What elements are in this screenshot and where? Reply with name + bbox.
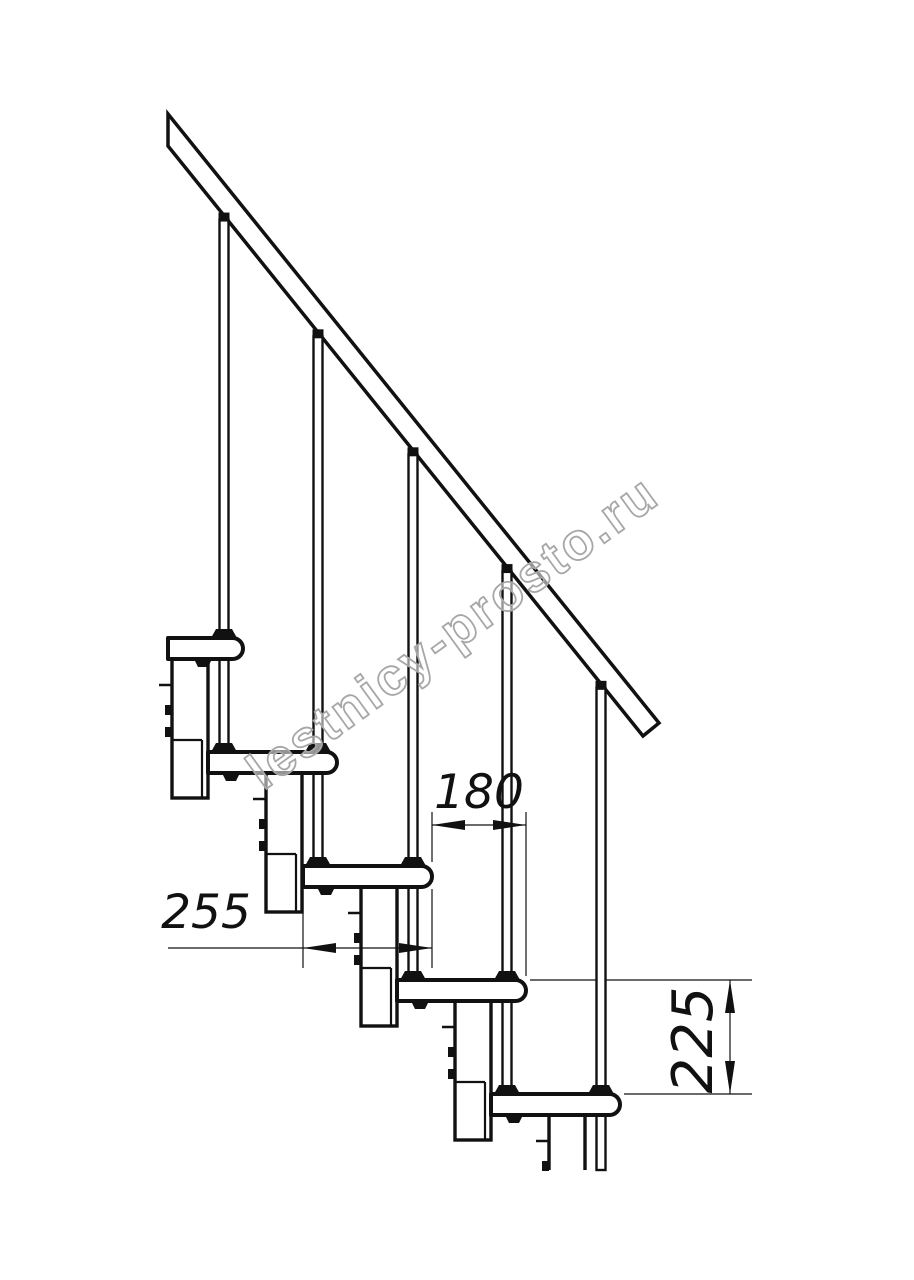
baluster-rod	[314, 336, 323, 862]
technical-drawing-figure: Side elevation technical drawing of a mo…	[0, 0, 914, 1280]
module-bolt-tab	[542, 1161, 549, 1171]
baluster-collar	[588, 1085, 614, 1094]
dimension-arrow	[725, 980, 735, 1013]
baluster-rail-cap	[408, 447, 419, 456]
baluster-collar	[400, 857, 426, 866]
dimensions-group: 180 255 225	[161, 765, 735, 1094]
dimension-label-255: 255	[161, 885, 251, 940]
baluster-rail-cap	[596, 681, 607, 690]
baluster-collar	[211, 629, 237, 638]
baluster-rod	[503, 571, 512, 1090]
dimension-arrow	[303, 943, 336, 953]
module-bolt-tab	[354, 955, 361, 965]
module-bolt-tab	[165, 727, 172, 737]
tread	[397, 980, 526, 1001]
tread-bolt	[317, 887, 335, 895]
baluster-base-flare	[305, 857, 331, 866]
staircase-elevation-drawing: Side elevation technical drawing of a mo…	[0, 0, 914, 1280]
baluster-base-flare	[211, 743, 237, 752]
baluster-rod	[409, 454, 418, 976]
baluster-rail-cap	[219, 213, 230, 222]
tread-bolt	[505, 1115, 523, 1123]
tread	[303, 866, 432, 887]
drawing-page: Side elevation technical drawing of a mo…	[0, 0, 914, 1280]
baluster-collar	[494, 971, 520, 980]
module-bolt-tab	[259, 819, 266, 829]
tread	[168, 638, 243, 659]
baluster-base-flare	[494, 1085, 520, 1094]
baluster-base-flare	[400, 971, 426, 980]
module-bolt-tab	[354, 933, 361, 943]
module-bolt-tab	[448, 1069, 455, 1079]
dimension-label-180: 180	[434, 765, 524, 820]
dimension-label-225: 225	[661, 987, 726, 1094]
module-bolt-tab	[259, 841, 266, 851]
module-bolt-tab	[448, 1047, 455, 1057]
dimension-arrow	[432, 820, 465, 830]
tread-bolt	[411, 1001, 429, 1009]
tread-bolt	[222, 773, 240, 781]
baluster-rod	[220, 220, 229, 748]
dimension-arrow	[725, 1061, 735, 1094]
module-bolt-tab	[165, 705, 172, 715]
baluster-rail-cap	[313, 329, 324, 338]
staircase-drawing-svg: Side elevation technical drawing of a mo…	[0, 0, 914, 1280]
tread	[491, 1094, 620, 1115]
